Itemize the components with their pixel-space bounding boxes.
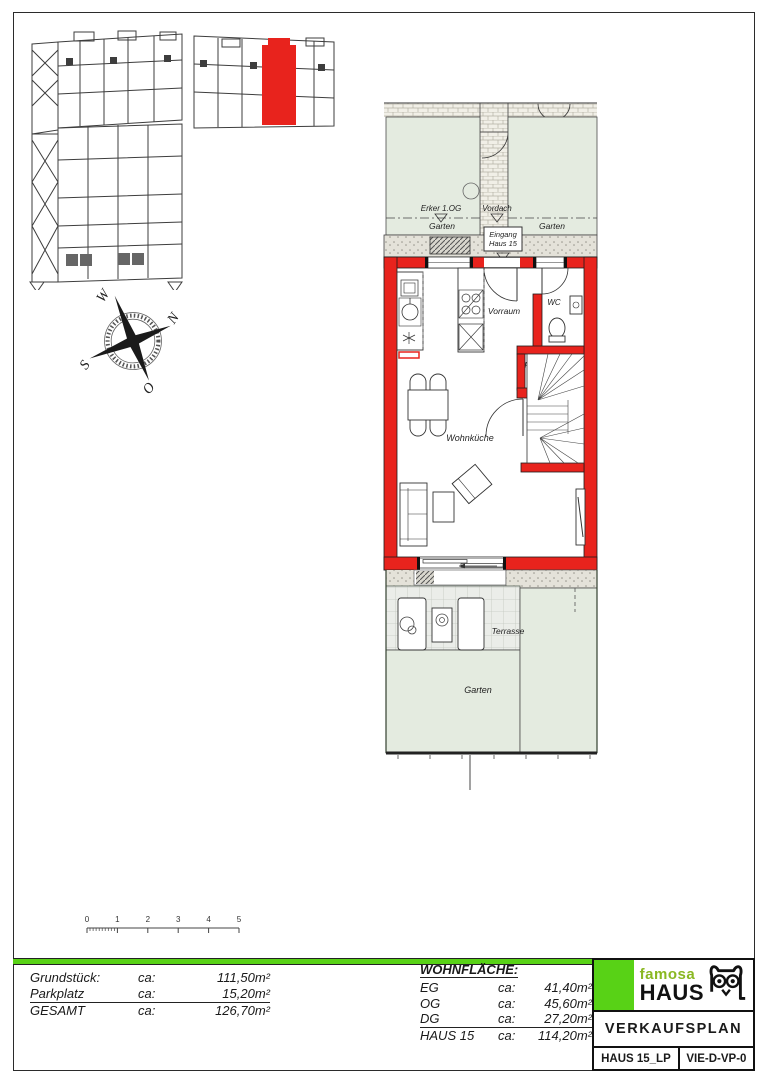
- podest-door-arc: [486, 399, 523, 436]
- floor-label: EG: [420, 980, 498, 996]
- highlighted-unit: [262, 38, 296, 125]
- dining-table: [408, 390, 448, 420]
- wohnflaeche-list: WOHNFLÄCHE: EG ca: 41,40m² OG ca: 45,60m…: [420, 962, 592, 1043]
- wohnflaeche-row-haus: HAUS 15 ca: 114,20m²: [420, 1028, 592, 1044]
- scale-tick-2: 2: [146, 915, 151, 924]
- walkway-band: [384, 103, 597, 117]
- lounger-1: [398, 598, 426, 650]
- brand-name-bottom: HAUS: [640, 982, 704, 1004]
- area-ca: ca:: [138, 970, 180, 986]
- label-wohnkueche: Wohnküche: [446, 433, 494, 443]
- site-garage-boxes: [66, 253, 144, 266]
- floor-plan: Erker 1.OG Vordach Garten Garten Eingang…: [380, 100, 606, 800]
- area-label: GESAMT: [30, 1003, 138, 1019]
- scale-tick-0: 0: [85, 915, 90, 924]
- label-eingang-1: Eingang: [489, 230, 517, 239]
- area-row-gesamt: GESAMT ca: 126,70m²: [30, 1003, 270, 1019]
- area-ca: ca:: [138, 1003, 180, 1019]
- floor-value: 45,60m²: [532, 996, 592, 1012]
- site-plan: [22, 30, 362, 290]
- sliding-door: [417, 557, 506, 570]
- garten-bottom-right: [520, 588, 597, 753]
- label-garten-left: Garten: [429, 221, 455, 231]
- area-value: 15,20m²: [180, 986, 270, 1002]
- area-label: Parkplatz: [30, 986, 138, 1002]
- title-block: famosa HAUS VERKAUFSPLAN HAUS 15_LP VIE-…: [592, 958, 755, 1071]
- compass-rose: W N S O: [72, 278, 194, 400]
- label-erker: Erker 1.OG: [421, 204, 461, 213]
- label-garten-bottom: Garten: [464, 685, 492, 695]
- floor-value: 41,40m²: [532, 980, 592, 996]
- floor-label: HAUS 15: [420, 1028, 498, 1044]
- garten-bottom-left: [386, 650, 520, 753]
- area-value: 126,70m²: [180, 1003, 270, 1019]
- garten-left: [386, 117, 480, 235]
- wohnflaeche-title: WOHNFLÄCHE:: [420, 962, 518, 978]
- lounger-2: [458, 598, 484, 650]
- wohnflaeche-row-eg: EG ca: 41,40m²: [420, 980, 592, 996]
- kitchen: [397, 268, 484, 358]
- label-vorraum: Vorraum: [488, 306, 520, 316]
- gravel-left: [386, 570, 414, 586]
- area-value: 111,50m²: [180, 970, 270, 986]
- scale-tick-1: 1: [115, 915, 120, 924]
- floor-label: DG: [420, 1011, 498, 1027]
- sofa: [400, 483, 427, 546]
- entry-path: [480, 117, 508, 235]
- compass-needles: [72, 281, 187, 399]
- wc-toilet: [549, 318, 565, 338]
- terrace-table: [432, 608, 452, 642]
- floor-ca: ca:: [498, 980, 532, 996]
- coffee-table: [433, 492, 454, 522]
- label-eingang-2: Haus 15: [489, 239, 518, 248]
- wohnflaeche-row-og: OG ca: 45,60m²: [420, 996, 592, 1012]
- area-ca: ca:: [138, 986, 180, 1002]
- room-wc: WC: [542, 268, 582, 342]
- living-furniture: [400, 464, 585, 546]
- compass-w: W: [93, 286, 114, 306]
- doc-info-row: HAUS 15_LP VIE-D-VP-0: [594, 1048, 753, 1069]
- title-block-logo-row: famosa HAUS: [594, 960, 753, 1012]
- gravel-right: [506, 570, 597, 588]
- garten-right: [508, 117, 597, 235]
- window-well: [430, 237, 470, 254]
- scale-tick-4: 4: [206, 915, 211, 924]
- site-left-strip: [32, 42, 58, 134]
- label-vordach: Vordach: [482, 204, 512, 213]
- floor-ca: ca:: [498, 1028, 532, 1044]
- staircase: [527, 354, 584, 463]
- doc-id: HAUS 15_LP: [594, 1048, 680, 1069]
- floor-label: OG: [420, 996, 498, 1012]
- label-terrasse: Terrasse: [492, 626, 525, 636]
- wc-basin: [570, 296, 582, 314]
- scale-bar: 0 1 2 3 4 5: [76, 910, 248, 944]
- brand-green-swatch: [594, 960, 634, 1010]
- label-wc: WC: [547, 298, 561, 307]
- armchair: [452, 464, 492, 503]
- plot-areas-list: Grundstück: ca: 111,50m² Parkplatz ca: 1…: [30, 970, 270, 1019]
- floor-value: 27,20m²: [532, 1011, 592, 1027]
- wohnflaeche-row-dg: DG ca: 27,20m²: [420, 1011, 592, 1028]
- label-garten-right: Garten: [539, 221, 565, 231]
- area-row-parkplatz: Parkplatz ca: 15,20m²: [30, 986, 270, 1003]
- dining-set: [408, 374, 448, 436]
- brand-logo: famosa HAUS: [634, 960, 753, 1010]
- compass-n: N: [164, 309, 184, 328]
- plan-title: VERKAUFSPLAN: [594, 1012, 753, 1048]
- floor-value: 114,20m²: [532, 1028, 592, 1044]
- entrance-door: [484, 257, 520, 301]
- owl-icon: [705, 962, 749, 1008]
- doc-code: VIE-D-VP-0: [680, 1048, 753, 1069]
- floor-ca: ca:: [498, 1011, 532, 1027]
- compass-s: S: [76, 358, 93, 373]
- area-row-grundstueck: Grundstück: ca: 111,50m²: [30, 970, 270, 986]
- floor-ca: ca:: [498, 996, 532, 1012]
- site-block-upper-left: [58, 34, 182, 128]
- scale-tick-5: 5: [237, 915, 242, 924]
- area-label: Grundstück:: [30, 970, 138, 986]
- verkaufsplan-page: W N S O: [0, 0, 763, 1080]
- scale-tick-3: 3: [176, 915, 181, 924]
- compass-o: O: [140, 380, 159, 398]
